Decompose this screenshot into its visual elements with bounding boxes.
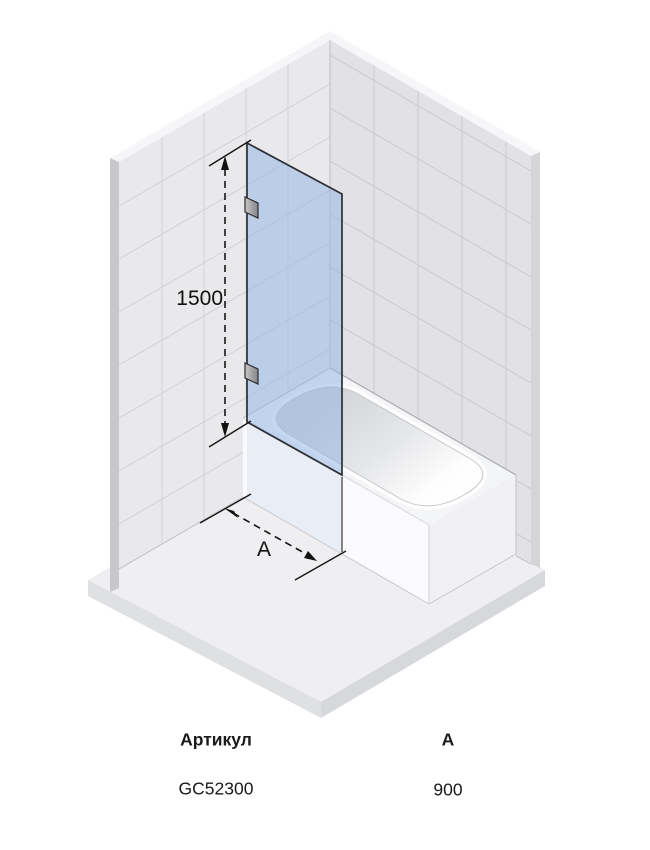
spec-header-article: Артикул bbox=[180, 730, 252, 751]
spec-header-a: А bbox=[442, 730, 455, 751]
right-wall-outer-edge bbox=[531, 152, 540, 568]
height-dimension-label: 1500 bbox=[176, 287, 223, 310]
glass-screen bbox=[247, 143, 342, 475]
width-dimension-label: А bbox=[257, 538, 271, 561]
bath-screen-technical-drawing: 1500 А Артикул А GC52300 900 bbox=[0, 0, 650, 850]
isometric-scene: 1500 А bbox=[0, 0, 650, 850]
spec-value-article: GC52300 bbox=[179, 779, 254, 800]
spec-value-a: 900 bbox=[433, 780, 462, 801]
left-wall-outer-edge bbox=[110, 158, 119, 592]
glass-panel bbox=[247, 143, 342, 475]
